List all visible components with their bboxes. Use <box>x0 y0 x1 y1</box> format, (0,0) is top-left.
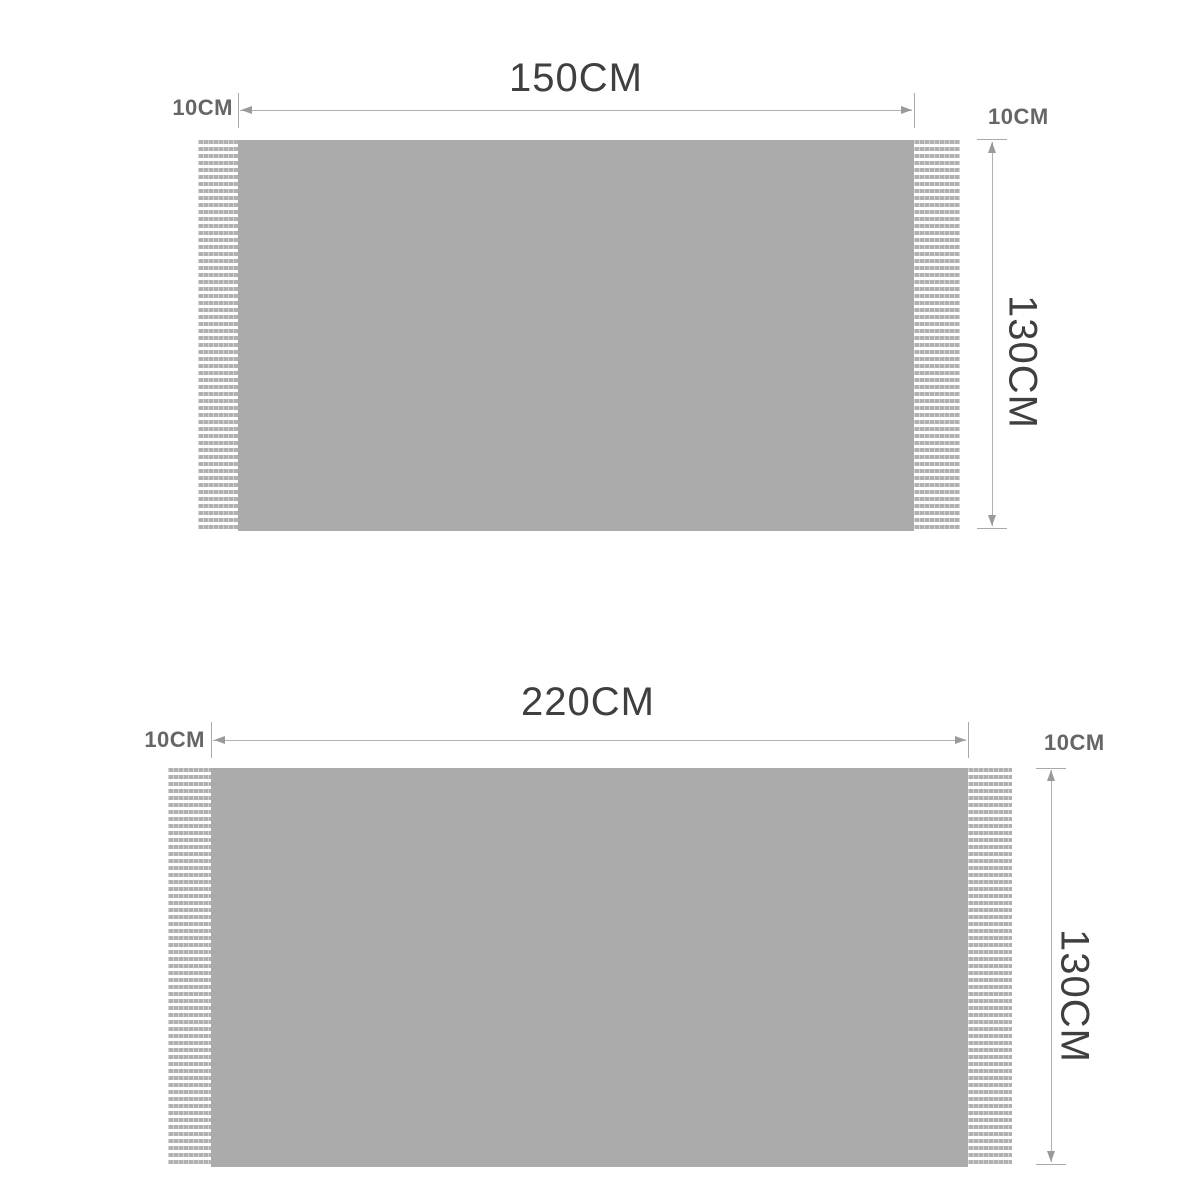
blanket-fringe-right <box>968 768 1012 1167</box>
blanket-fringe-left <box>198 140 238 531</box>
arrow-left-icon <box>241 106 252 114</box>
horizontal-dimension-line <box>240 110 912 111</box>
arrow-down-icon <box>988 515 996 526</box>
dimension-tick <box>238 93 239 128</box>
blanket-body <box>238 140 914 531</box>
height-dimension-label: 130CM <box>1000 295 1045 429</box>
width-dimension-label: 150CM <box>509 56 643 101</box>
vertical-dimension-line <box>992 142 993 526</box>
blanket-fringe-right <box>914 140 960 531</box>
dimension-tick <box>1036 768 1066 769</box>
height-dimension-label: 130CM <box>1052 929 1097 1063</box>
dimension-tick <box>977 528 1007 529</box>
left-fringe-dimension-label: 10CM <box>153 95 233 121</box>
arrow-right-icon <box>901 106 912 114</box>
arrow-right-icon <box>955 736 966 744</box>
dimension-tick <box>914 93 915 128</box>
arrow-down-icon <box>1047 1151 1055 1162</box>
dimension-diagram-canvas: 150CM 10CM 10CM 130CM 220CM 10CM 10CM <box>0 0 1200 1200</box>
dimension-tick <box>977 139 1007 140</box>
blanket-body <box>211 768 968 1167</box>
right-fringe-dimension-label: 10CM <box>1044 730 1105 756</box>
horizontal-dimension-line <box>213 740 966 741</box>
arrow-left-icon <box>214 736 225 744</box>
dimension-tick <box>1036 1164 1066 1165</box>
arrow-up-icon <box>1047 770 1055 781</box>
left-fringe-dimension-label: 10CM <box>125 727 205 753</box>
width-dimension-label: 220CM <box>521 680 655 725</box>
arrow-up-icon <box>988 142 996 153</box>
right-fringe-dimension-label: 10CM <box>988 104 1049 130</box>
dimension-tick <box>968 722 969 758</box>
dimension-tick <box>211 722 212 758</box>
blanket-fringe-left <box>168 768 211 1167</box>
